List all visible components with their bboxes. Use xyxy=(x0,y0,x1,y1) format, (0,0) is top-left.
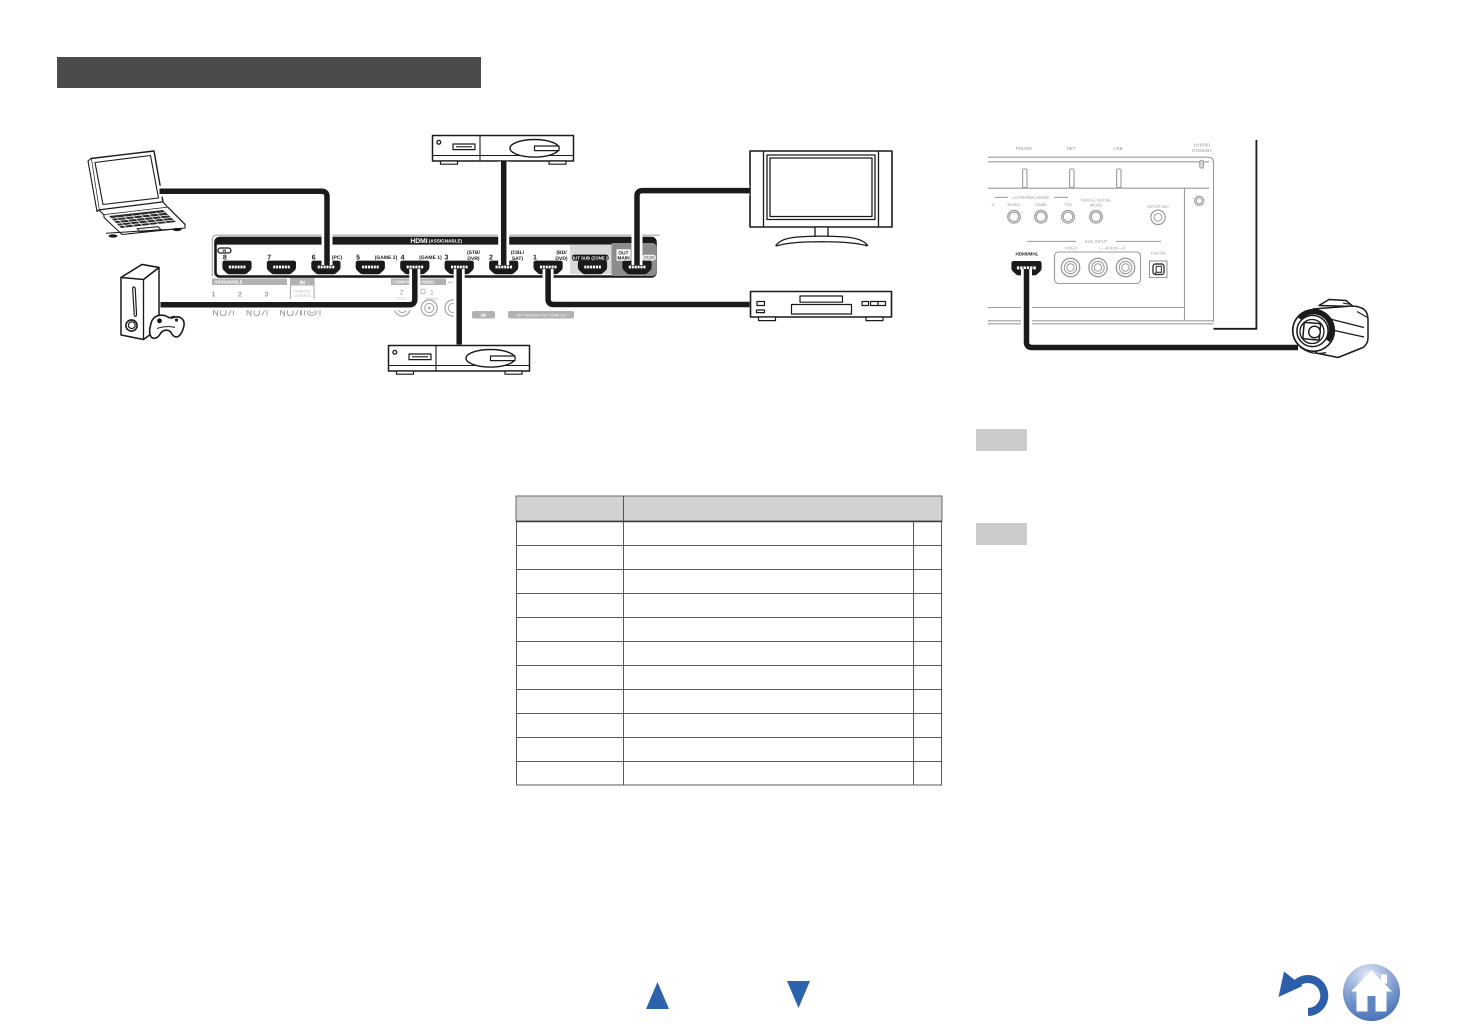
svg-text:HDMI: HDMI xyxy=(410,238,427,245)
svg-text:CONTROL: CONTROL xyxy=(293,294,311,298)
svg-text:2: 2 xyxy=(489,255,493,262)
svg-text:SAT): SAT) xyxy=(512,256,524,262)
svg-text:(GAME 1): (GAME 1) xyxy=(419,255,442,261)
svg-text:DVD): DVD) xyxy=(555,256,568,262)
svg-text:LISTENING MODE: LISTENING MODE xyxy=(1013,195,1049,200)
svg-text:OUT: OUT xyxy=(618,250,628,256)
svg-text:12V TRIGGER OUT ZONE 2 B: 12V TRIGGER OUT ZONE 2 B xyxy=(516,313,566,317)
svg-text:PHONO: PHONO xyxy=(1016,146,1033,151)
svg-text:2: 2 xyxy=(238,292,242,299)
svg-text:IN: IN xyxy=(222,248,226,253)
svg-text:1: 1 xyxy=(212,292,216,299)
svg-text:3: 3 xyxy=(445,255,449,262)
svg-text:SETUP MIC: SETUP MIC xyxy=(1147,204,1169,209)
svg-text:7: 7 xyxy=(267,255,271,262)
svg-text:STANDBY: STANDBY xyxy=(1192,148,1212,153)
svg-text:IR: IR xyxy=(481,313,486,319)
svg-text:6: 6 xyxy=(312,255,316,262)
svg-text:DVR): DVR) xyxy=(467,256,480,262)
svg-text:THX: THX xyxy=(1064,202,1072,207)
svg-text:(ARC): (ARC) xyxy=(644,256,655,260)
svg-text:V: V xyxy=(992,202,995,207)
svg-text:(GAME 2): (GAME 2) xyxy=(375,255,398,261)
svg-text:MUSIC: MUSIC xyxy=(1008,202,1021,207)
svg-text:(PC): (PC) xyxy=(332,255,343,261)
svg-text:1: 1 xyxy=(430,290,434,297)
svg-text:OUT SUB (ZONE 2): OUT SUB (ZONE 2) xyxy=(571,255,610,260)
svg-text:USB: USB xyxy=(1113,146,1122,151)
svg-text:8: 8 xyxy=(223,255,227,262)
svg-text:MAIN: MAIN xyxy=(617,256,630,262)
svg-text:RI: RI xyxy=(299,280,305,286)
svg-text:HDMI/MHL: HDMI/MHL xyxy=(1016,252,1039,257)
svg-text:4: 4 xyxy=(401,255,405,262)
svg-text:REMOTE: REMOTE xyxy=(295,290,311,294)
svg-text:AUX INPUT: AUX INPUT xyxy=(1085,239,1108,244)
svg-text:ASSIGNABLE: ASSIGNABLE xyxy=(215,280,243,285)
svg-text:HYBRID: HYBRID xyxy=(1194,143,1211,148)
svg-text:2: 2 xyxy=(400,290,404,297)
svg-text:1: 1 xyxy=(533,255,537,262)
svg-text:GAME: GAME xyxy=(1035,202,1047,207)
svg-text:(ASSIGNABLE): (ASSIGNABLE) xyxy=(429,239,463,244)
svg-text:3: 3 xyxy=(265,292,269,299)
svg-text:L—AUDIO—R: L—AUDIO—R xyxy=(1099,246,1125,251)
svg-text:5: 5 xyxy=(356,255,360,262)
svg-text:DIGITAL: DIGITAL xyxy=(1151,251,1167,256)
svg-text:MODE: MODE xyxy=(1090,203,1102,208)
svg-text:NET: NET xyxy=(1067,146,1076,151)
svg-text:VIDEO: VIDEO xyxy=(1065,246,1077,251)
